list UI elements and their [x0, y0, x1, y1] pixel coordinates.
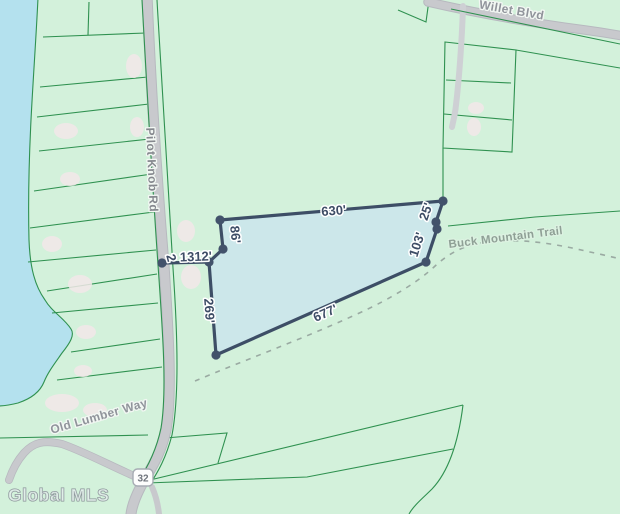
building-footprint: [74, 365, 92, 377]
parcel-vertex: [215, 215, 224, 224]
building-footprint: [126, 54, 142, 78]
parcel-vertex: [421, 257, 430, 266]
building-footprint: [468, 102, 484, 114]
building-footprint: [68, 275, 92, 293]
route-shield-32: 32: [133, 469, 153, 486]
mls-map-canvas[interactable]: Pilot Knob Rd Willet Blvd Old Lumber Way…: [0, 0, 620, 514]
dimension-label-northwest: 86': [227, 225, 244, 244]
route-shield-number: 32: [137, 474, 149, 485]
parcel-vertex: [438, 196, 447, 205]
dimension-label-west: 269': [201, 298, 218, 324]
parcel-vertex: [218, 244, 227, 253]
building-footprint: [467, 118, 481, 136]
map-svg: Pilot Knob Rd Willet Blvd Old Lumber Way…: [0, 0, 620, 514]
parcel-vertex: [211, 350, 220, 359]
building-footprint: [60, 172, 80, 186]
building-footprint: [76, 325, 96, 339]
building-footprint: [130, 117, 144, 137]
building-footprint: [181, 265, 201, 289]
watermark-global-mls: Global MLS: [8, 485, 109, 505]
building-footprint: [45, 394, 79, 412]
building-footprint: [42, 236, 62, 252]
building-footprint: [54, 123, 78, 139]
dimension-label-north: 630': [321, 202, 347, 219]
building-footprint: [177, 220, 195, 242]
dimension-label-road-spur: 1312': [180, 248, 213, 264]
parcel-vertex: [432, 224, 441, 233]
